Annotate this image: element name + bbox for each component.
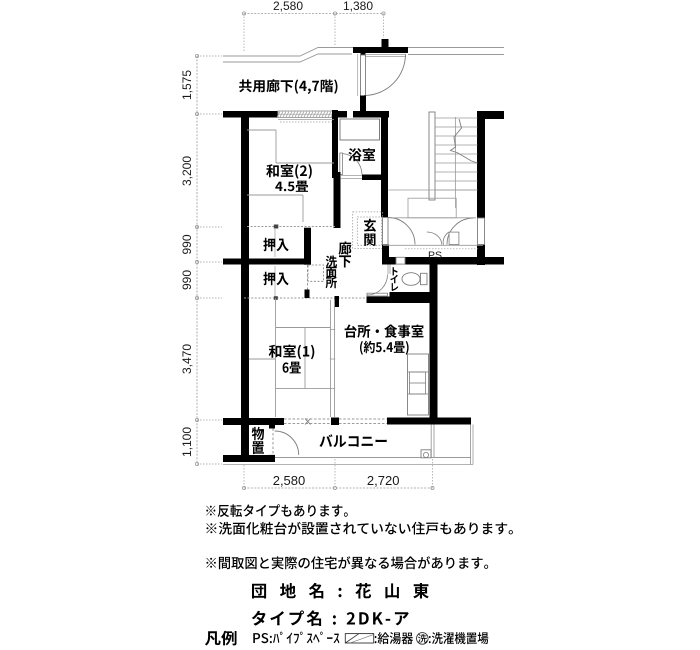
svg-text:3,200: 3,200 [180, 156, 194, 186]
svg-text:1,100: 1,100 [180, 427, 194, 457]
svg-text:3,470: 3,470 [180, 344, 194, 374]
svg-text:1,380: 1,380 [343, 0, 373, 13]
svg-text:PS: PS [428, 250, 442, 262]
svg-text:2,720: 2,720 [367, 473, 400, 488]
svg-text:990: 990 [180, 234, 194, 254]
svg-text:1,575: 1,575 [180, 70, 194, 100]
svg-text:2,580: 2,580 [273, 0, 303, 13]
svg-text:2,580: 2,580 [273, 473, 306, 488]
svg-text:990: 990 [180, 270, 194, 290]
